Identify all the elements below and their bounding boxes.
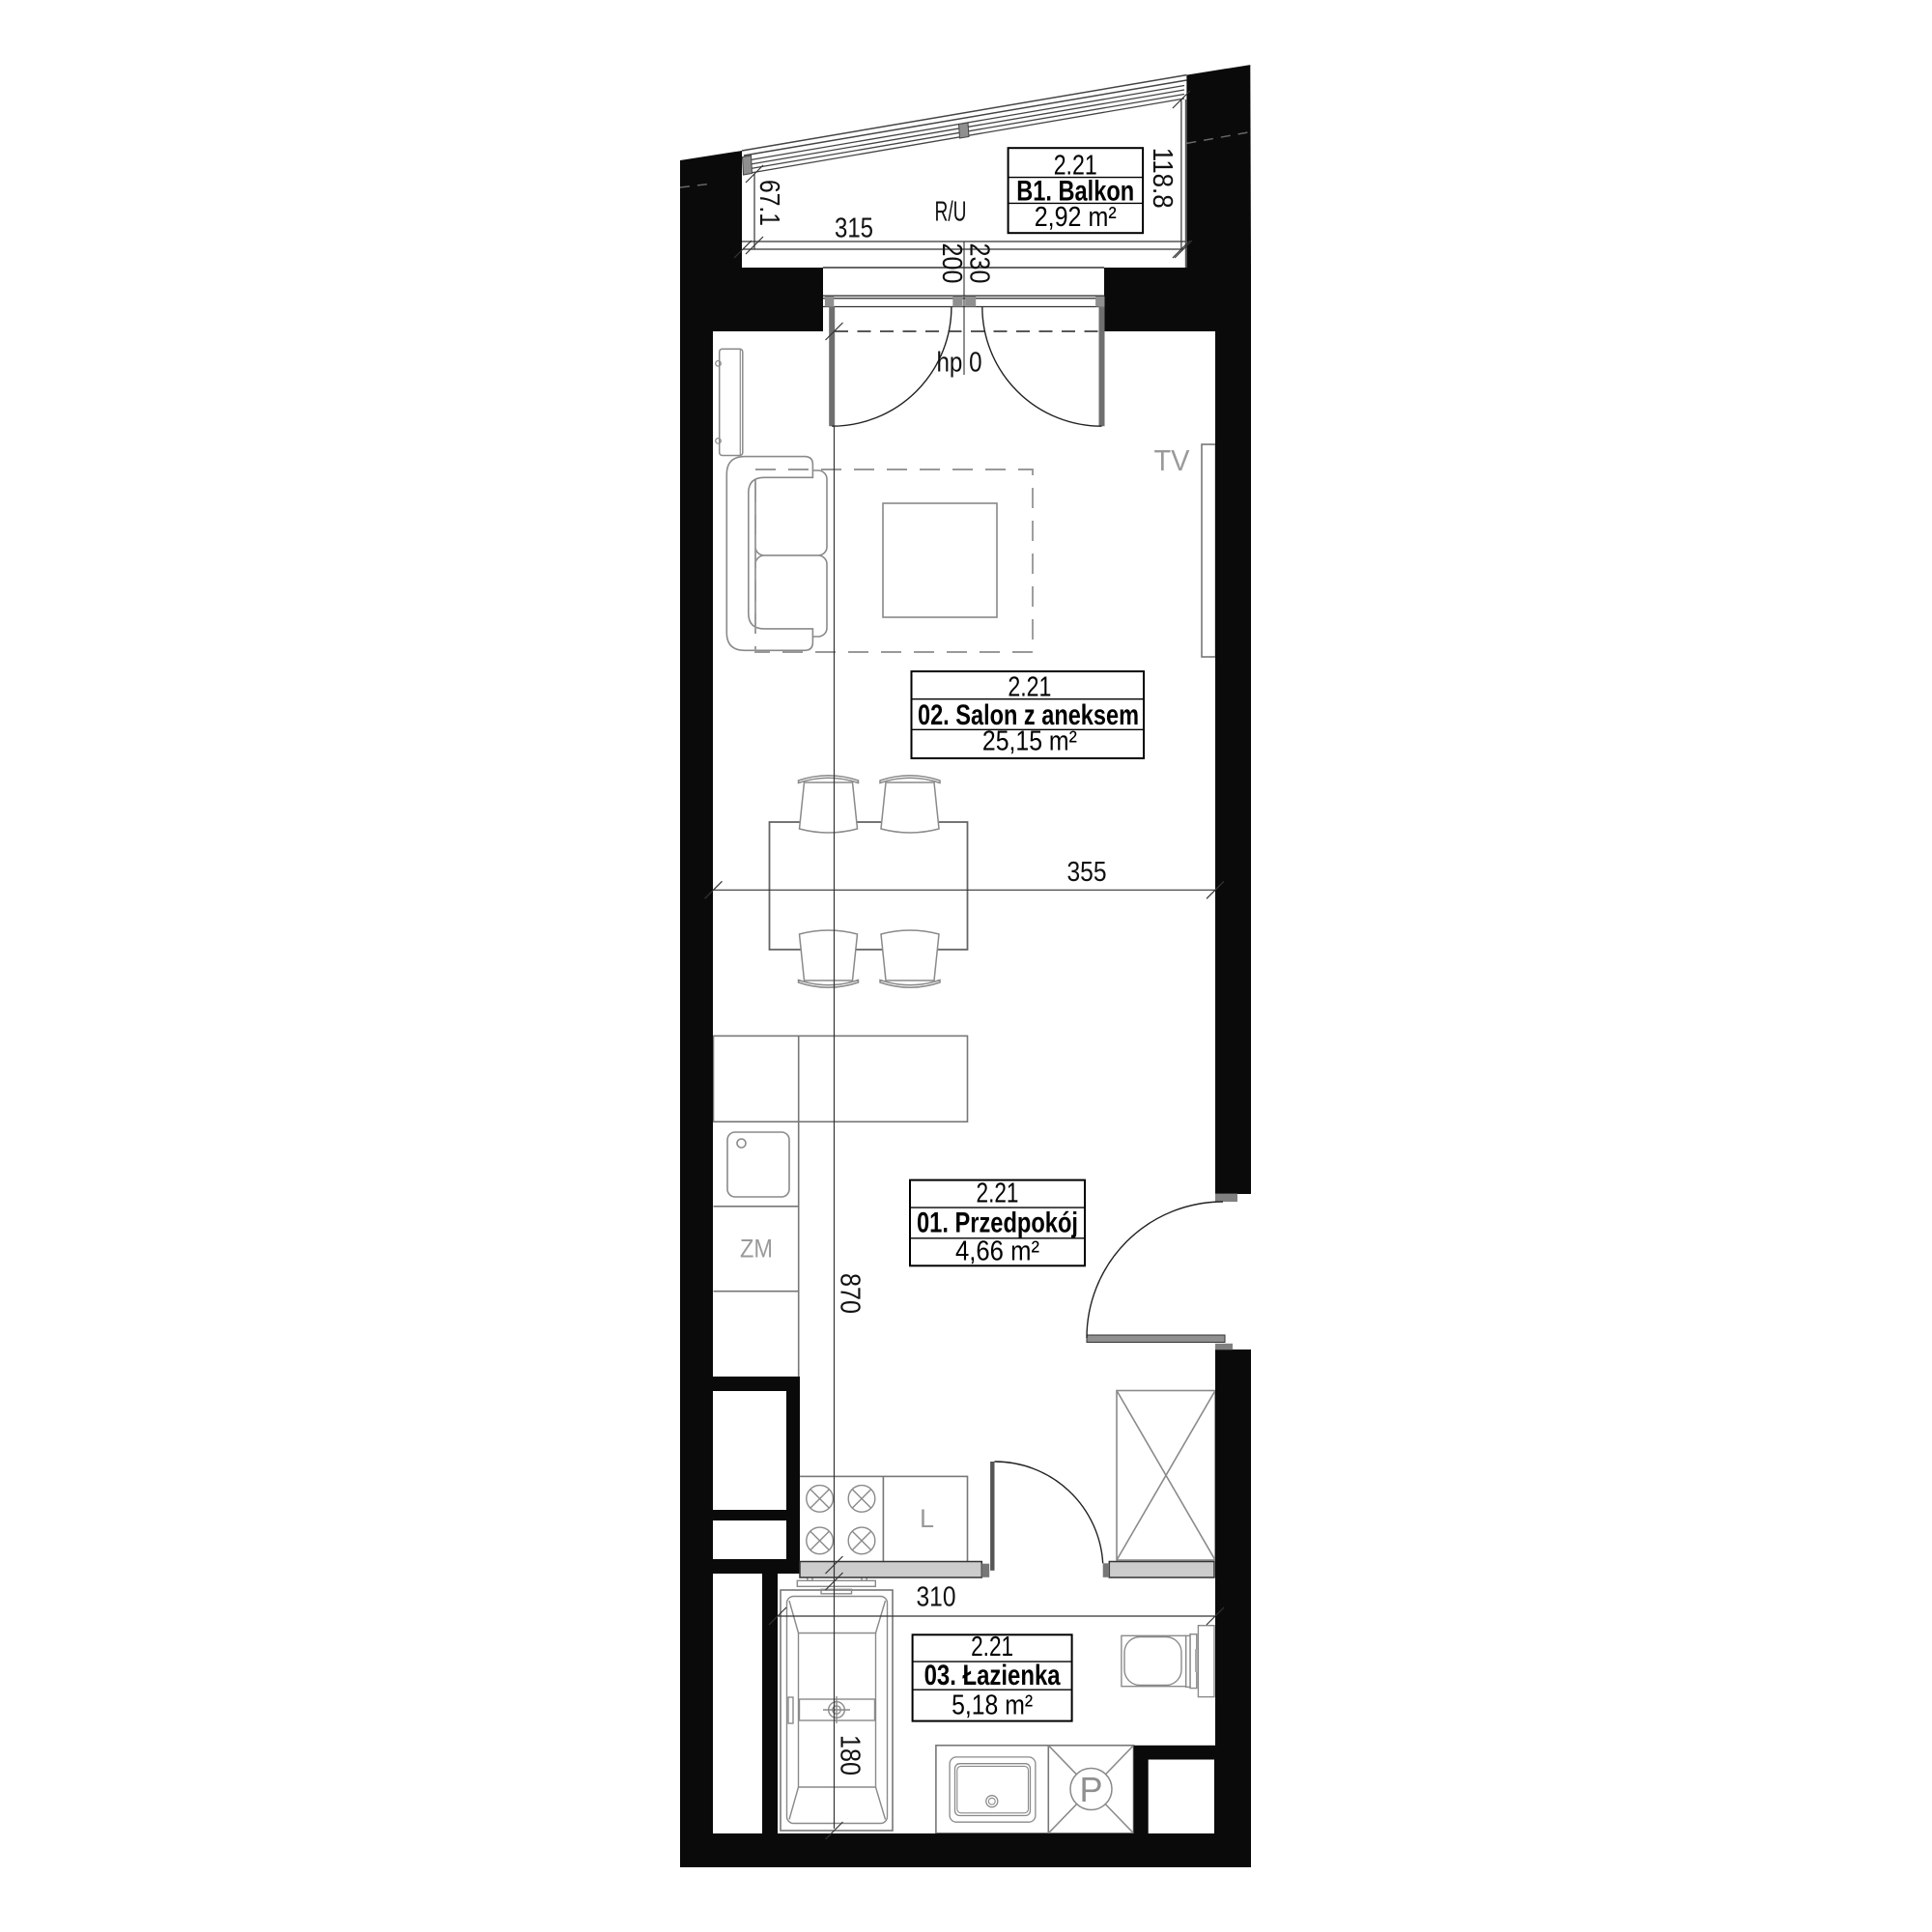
svg-text:870: 870 xyxy=(835,1273,866,1314)
svg-text:355: 355 xyxy=(1067,857,1107,888)
svg-text:25,15 m²: 25,15 m² xyxy=(982,726,1077,757)
svg-text:P: P xyxy=(1079,1770,1102,1809)
svg-text:2.21: 2.21 xyxy=(977,1179,1019,1209)
svg-text:67.1: 67.1 xyxy=(753,180,784,226)
svg-text:L: L xyxy=(920,1504,934,1533)
svg-text:180: 180 xyxy=(835,1735,866,1776)
svg-text:2,92 m²: 2,92 m² xyxy=(1035,202,1117,233)
svg-text:5,18 m²: 5,18 m² xyxy=(952,1690,1033,1721)
svg-text:R/U: R/U xyxy=(935,197,967,228)
svg-text:03. Łazienka: 03. Łazienka xyxy=(924,1660,1061,1691)
svg-text:ZM: ZM xyxy=(740,1235,773,1264)
svg-text:hp 0: hp 0 xyxy=(937,348,982,379)
svg-text:2.21: 2.21 xyxy=(1008,672,1051,703)
svg-text:310: 310 xyxy=(917,1582,956,1613)
svg-text:01. Przedpokój: 01. Przedpokój xyxy=(917,1207,1078,1239)
svg-text:2.21: 2.21 xyxy=(971,1632,1013,1662)
svg-text:4,66 m²: 4,66 m² xyxy=(955,1236,1039,1267)
svg-text:200: 200 xyxy=(936,243,967,284)
svg-text:315: 315 xyxy=(835,213,873,244)
svg-text:230: 230 xyxy=(964,243,995,284)
svg-text:TV: TV xyxy=(1154,443,1190,477)
svg-text:118.8: 118.8 xyxy=(1147,148,1178,209)
